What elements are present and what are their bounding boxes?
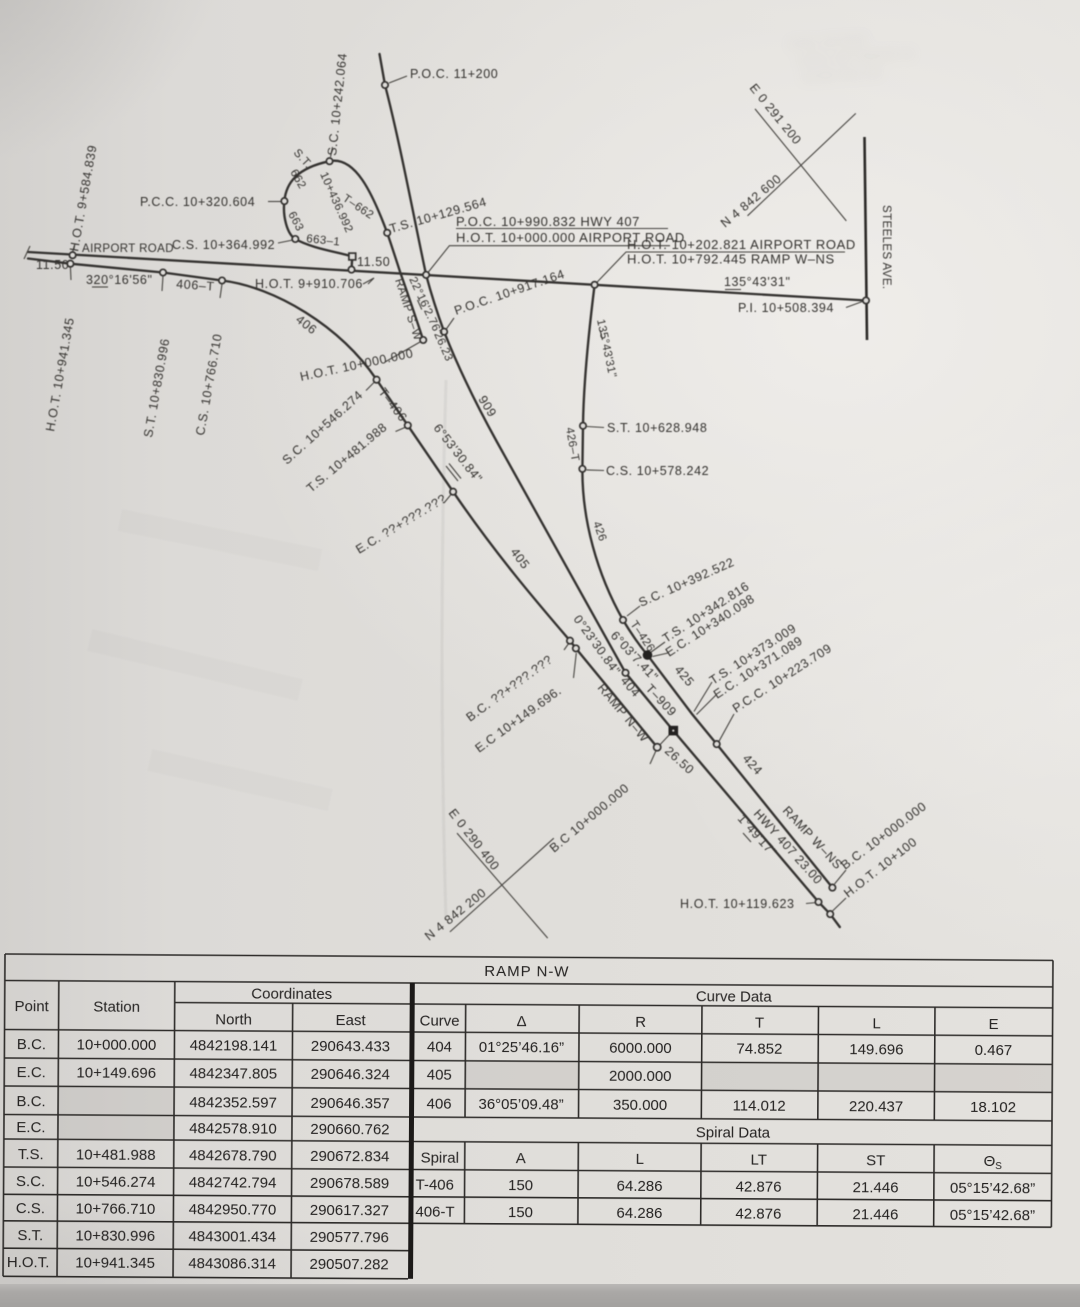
- svg-text:B.C.: B.C.: [16, 1093, 45, 1110]
- svg-text:C.S. 10+364.992: C.S. 10+364.992: [172, 238, 275, 252]
- svg-text:E 0 290 400: E 0 290 400: [446, 806, 503, 873]
- svg-text:406: 406: [427, 1096, 452, 1113]
- svg-text:150: 150: [508, 1177, 533, 1194]
- svg-text:135°43'31": 135°43'31": [594, 318, 618, 379]
- svg-text:C.S. 10+766.710: C.S. 10+766.710: [193, 332, 225, 436]
- svg-text:405: 405: [427, 1067, 452, 1084]
- svg-text:149.696: 149.696: [849, 1041, 903, 1058]
- svg-text:T.S.: T.S.: [18, 1146, 44, 1163]
- svg-text:426: 426: [590, 520, 608, 543]
- svg-text:4842198.141: 4842198.141: [190, 1037, 278, 1055]
- svg-text:10+481.988: 10+481.988: [76, 1146, 156, 1163]
- svg-text:290617.327: 290617.327: [310, 1202, 389, 1219]
- svg-text:C.S.: C.S.: [16, 1200, 45, 1217]
- svg-text:42.876: 42.876: [736, 1178, 782, 1195]
- svg-text:A: A: [516, 1150, 526, 1167]
- svg-text:404: 404: [427, 1039, 452, 1056]
- svg-text:290643.433: 290643.433: [311, 1038, 390, 1055]
- svg-text:4842678.790: 4842678.790: [189, 1147, 277, 1165]
- svg-text:E.C 10+149.696.: E.C 10+149.696.: [473, 683, 565, 755]
- svg-text:N 4 842 200: N 4 842 200: [422, 885, 489, 943]
- svg-text:E: E: [989, 1016, 999, 1033]
- svg-text:H.O.T.: H.O.T.: [7, 1254, 50, 1271]
- svg-text:350.000: 350.000: [613, 1097, 667, 1114]
- svg-text:N 4 842 600: N 4 842 600: [718, 172, 784, 231]
- svg-text:P.C.C. 10+320.604: P.C.C. 10+320.604: [140, 195, 255, 209]
- svg-text:R: R: [635, 1014, 646, 1031]
- svg-text:10+149.696: 10+149.696: [76, 1064, 156, 1081]
- svg-text:4842950.770: 4842950.770: [189, 1201, 277, 1219]
- svg-text:0.467: 0.467: [975, 1042, 1013, 1059]
- svg-text:426–T: 426–T: [563, 426, 581, 462]
- svg-text:425: 425: [672, 663, 697, 689]
- svg-text:Curve: Curve: [420, 1013, 460, 1030]
- svg-text:S.C. 10+242.064: S.C. 10+242.064: [325, 52, 350, 156]
- svg-text:P.O.C. 10+917.164: P.O.C. 10+917.164: [452, 267, 566, 318]
- svg-text:10+941.345: 10+941.345: [75, 1254, 155, 1271]
- svg-text:4842578.910: 4842578.910: [189, 1120, 277, 1138]
- svg-text:T: T: [755, 1015, 764, 1032]
- svg-text:2000.000: 2000.000: [609, 1068, 672, 1085]
- svg-text:L: L: [636, 1151, 644, 1168]
- svg-text:B.C 10+000.000: B.C 10+000.000: [547, 781, 632, 855]
- svg-text:290507.282: 290507.282: [309, 1256, 388, 1273]
- svg-text:290577.796: 290577.796: [310, 1229, 389, 1246]
- svg-text:RAMP N-W: RAMP N-W: [484, 963, 569, 981]
- svg-text:406-T: 406-T: [415, 1204, 454, 1221]
- svg-text:H.O.T. 9+910.706: H.O.T. 9+910.706: [255, 277, 363, 291]
- svg-text:05°15’42.68”: 05°15’42.68”: [950, 1180, 1035, 1198]
- svg-text:H.O.T. 10+202.821 AIRPORT R: H.O.T. 10+202.821 AIRPORT ROAD: [627, 237, 856, 252]
- svg-text:S.T. 10+628.948: S.T. 10+628.948: [607, 421, 707, 435]
- svg-text:E.C. ??+???.???: E.C. ??+???.???: [353, 491, 449, 556]
- svg-text:64.286: 64.286: [617, 1178, 663, 1195]
- svg-text:B.C.: B.C.: [17, 1036, 46, 1053]
- svg-text:4842742.794: 4842742.794: [189, 1174, 277, 1192]
- svg-text:B.C. ??+???.???: B.C. ??+???.???: [464, 652, 556, 724]
- svg-text:AIRPORT ROAD: AIRPORT ROAD: [82, 243, 174, 255]
- svg-text:Station: Station: [93, 999, 140, 1016]
- svg-text:290678.589: 290678.589: [310, 1175, 389, 1192]
- svg-text:10+546.274: 10+546.274: [76, 1173, 156, 1190]
- svg-text:S.T.: S.T.: [17, 1227, 43, 1244]
- svg-text:STEELES AVE.: STEELES AVE.: [880, 205, 892, 290]
- svg-text:406–T: 406–T: [176, 277, 215, 294]
- svg-text:Spiral: Spiral: [421, 1150, 459, 1167]
- svg-text:Coordinates: Coordinates: [251, 986, 332, 1003]
- svg-text:E.C.: E.C.: [16, 1119, 45, 1136]
- svg-text:4842347.805: 4842347.805: [189, 1065, 277, 1083]
- svg-text:T-406: T-406: [416, 1177, 454, 1194]
- svg-text:05°15’42.68”: 05°15’42.68”: [950, 1207, 1035, 1225]
- svg-text:H.O.T. 10+792.445 RAMP W–NS: H.O.T. 10+792.445 RAMP W–NS: [627, 252, 835, 267]
- svg-text:150: 150: [508, 1204, 533, 1221]
- svg-text:H.O.T. 10+000.000: H.O.T. 10+000.000: [299, 346, 415, 384]
- svg-text:Δ: Δ: [517, 1013, 527, 1030]
- svg-text:114.012: 114.012: [732, 1097, 785, 1114]
- svg-text:4843001.434: 4843001.434: [188, 1228, 276, 1246]
- svg-text:4842352.597: 4842352.597: [189, 1094, 277, 1112]
- svg-text:74.852: 74.852: [736, 1040, 782, 1057]
- svg-text:11.50: 11.50: [36, 258, 69, 272]
- svg-text:290646.357: 290646.357: [310, 1095, 389, 1112]
- svg-text:P.I. 10+508.394: P.I. 10+508.394: [738, 301, 834, 315]
- svg-text:LT: LT: [751, 1152, 768, 1169]
- svg-text:ST: ST: [866, 1152, 885, 1169]
- svg-text:4843086.314: 4843086.314: [188, 1255, 276, 1273]
- svg-text:320°16'56": 320°16'56": [86, 273, 153, 287]
- svg-text:C.S. 10+578.242: C.S. 10+578.242: [606, 464, 709, 478]
- svg-text:135°43'31": 135°43'31": [724, 275, 791, 289]
- svg-text:42.876: 42.876: [735, 1205, 781, 1222]
- svg-text:H.O.T. 10+941.345: H.O.T. 10+941.345: [43, 316, 77, 432]
- svg-text:406: 406: [293, 312, 319, 337]
- svg-text:405: 405: [508, 545, 533, 572]
- svg-text:64.286: 64.286: [616, 1205, 662, 1222]
- svg-text:E 0 291 200: E 0 291 200: [747, 81, 804, 147]
- svg-text:Point: Point: [15, 998, 50, 1015]
- svg-text:E.C.: E.C.: [17, 1064, 46, 1081]
- svg-text:P.O.C. 11+200: P.O.C. 11+200: [410, 67, 498, 81]
- svg-text:S.C.: S.C.: [16, 1173, 45, 1190]
- svg-text:Curve Data: Curve Data: [696, 988, 773, 1005]
- svg-text:T–406: T–406: [376, 385, 410, 424]
- svg-text:10+000.000: 10+000.000: [77, 1036, 157, 1053]
- svg-text:36°05’09.48”: 36°05’09.48”: [478, 1096, 563, 1114]
- svg-text:21.446: 21.446: [852, 1206, 898, 1223]
- svg-text:P.O.C. 10+990.832 HWY 407: P.O.C. 10+990.832 HWY 407: [456, 214, 640, 229]
- svg-text:H.O.T. 9+584.839: H.O.T. 9+584.839: [67, 144, 100, 253]
- svg-text:290660.762: 290660.762: [310, 1121, 389, 1138]
- svg-text:21.446: 21.446: [853, 1179, 899, 1196]
- svg-text:S.T. 10+830.996: S.T. 10+830.996: [141, 337, 172, 438]
- svg-text:H.O.T. 10+119.623: H.O.T. 10+119.623: [680, 897, 795, 911]
- svg-text:6°53'30.84": 6°53'30.84": [431, 421, 485, 485]
- svg-text:26.50: 26.50: [662, 744, 697, 777]
- svg-text:290672.834: 290672.834: [310, 1148, 389, 1165]
- svg-text:East: East: [336, 1012, 367, 1029]
- svg-text:Spiral Data: Spiral Data: [696, 1124, 771, 1141]
- svg-text:11.50: 11.50: [357, 255, 390, 269]
- svg-text:18.102: 18.102: [970, 1099, 1016, 1116]
- svg-text:L: L: [872, 1015, 880, 1032]
- svg-text:10+830.996: 10+830.996: [75, 1227, 155, 1244]
- svg-text:ΘS: ΘS: [984, 1153, 1003, 1172]
- svg-text:404: 404: [618, 674, 643, 700]
- svg-text:North: North: [215, 1011, 252, 1028]
- svg-text:10+766.710: 10+766.710: [76, 1200, 156, 1217]
- svg-text:424: 424: [740, 752, 766, 778]
- svg-text:290646.324: 290646.324: [311, 1066, 390, 1083]
- svg-text:01°25’46.16”: 01°25’46.16”: [479, 1039, 564, 1057]
- svg-text:220.437: 220.437: [849, 1098, 903, 1115]
- svg-text:6000.000: 6000.000: [609, 1040, 672, 1057]
